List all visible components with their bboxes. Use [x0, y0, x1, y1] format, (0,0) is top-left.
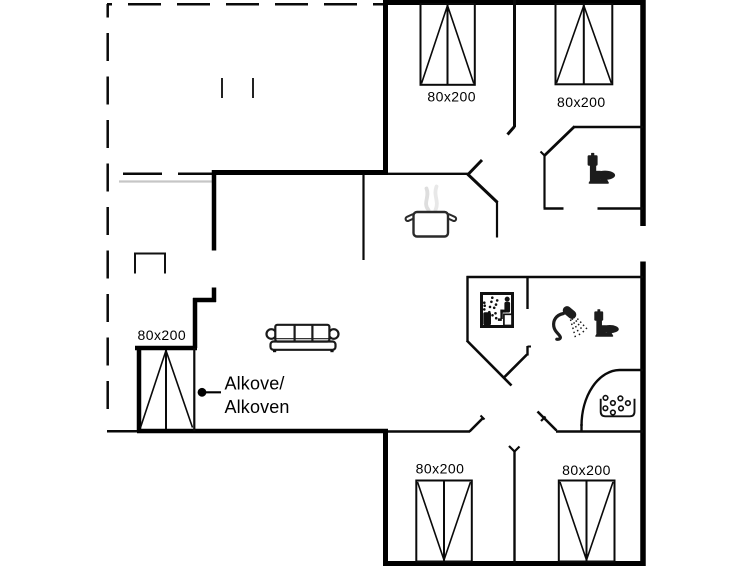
svg-text:80x200: 80x200 — [137, 327, 186, 343]
svg-text:80x200: 80x200 — [416, 461, 465, 477]
svg-text:80x200: 80x200 — [557, 94, 606, 110]
svg-text:80x200: 80x200 — [427, 89, 476, 105]
svg-text:80x200: 80x200 — [562, 462, 611, 478]
svg-text:Alkove/: Alkove/ — [225, 374, 285, 394]
svg-text:Alkoven: Alkoven — [225, 397, 290, 417]
